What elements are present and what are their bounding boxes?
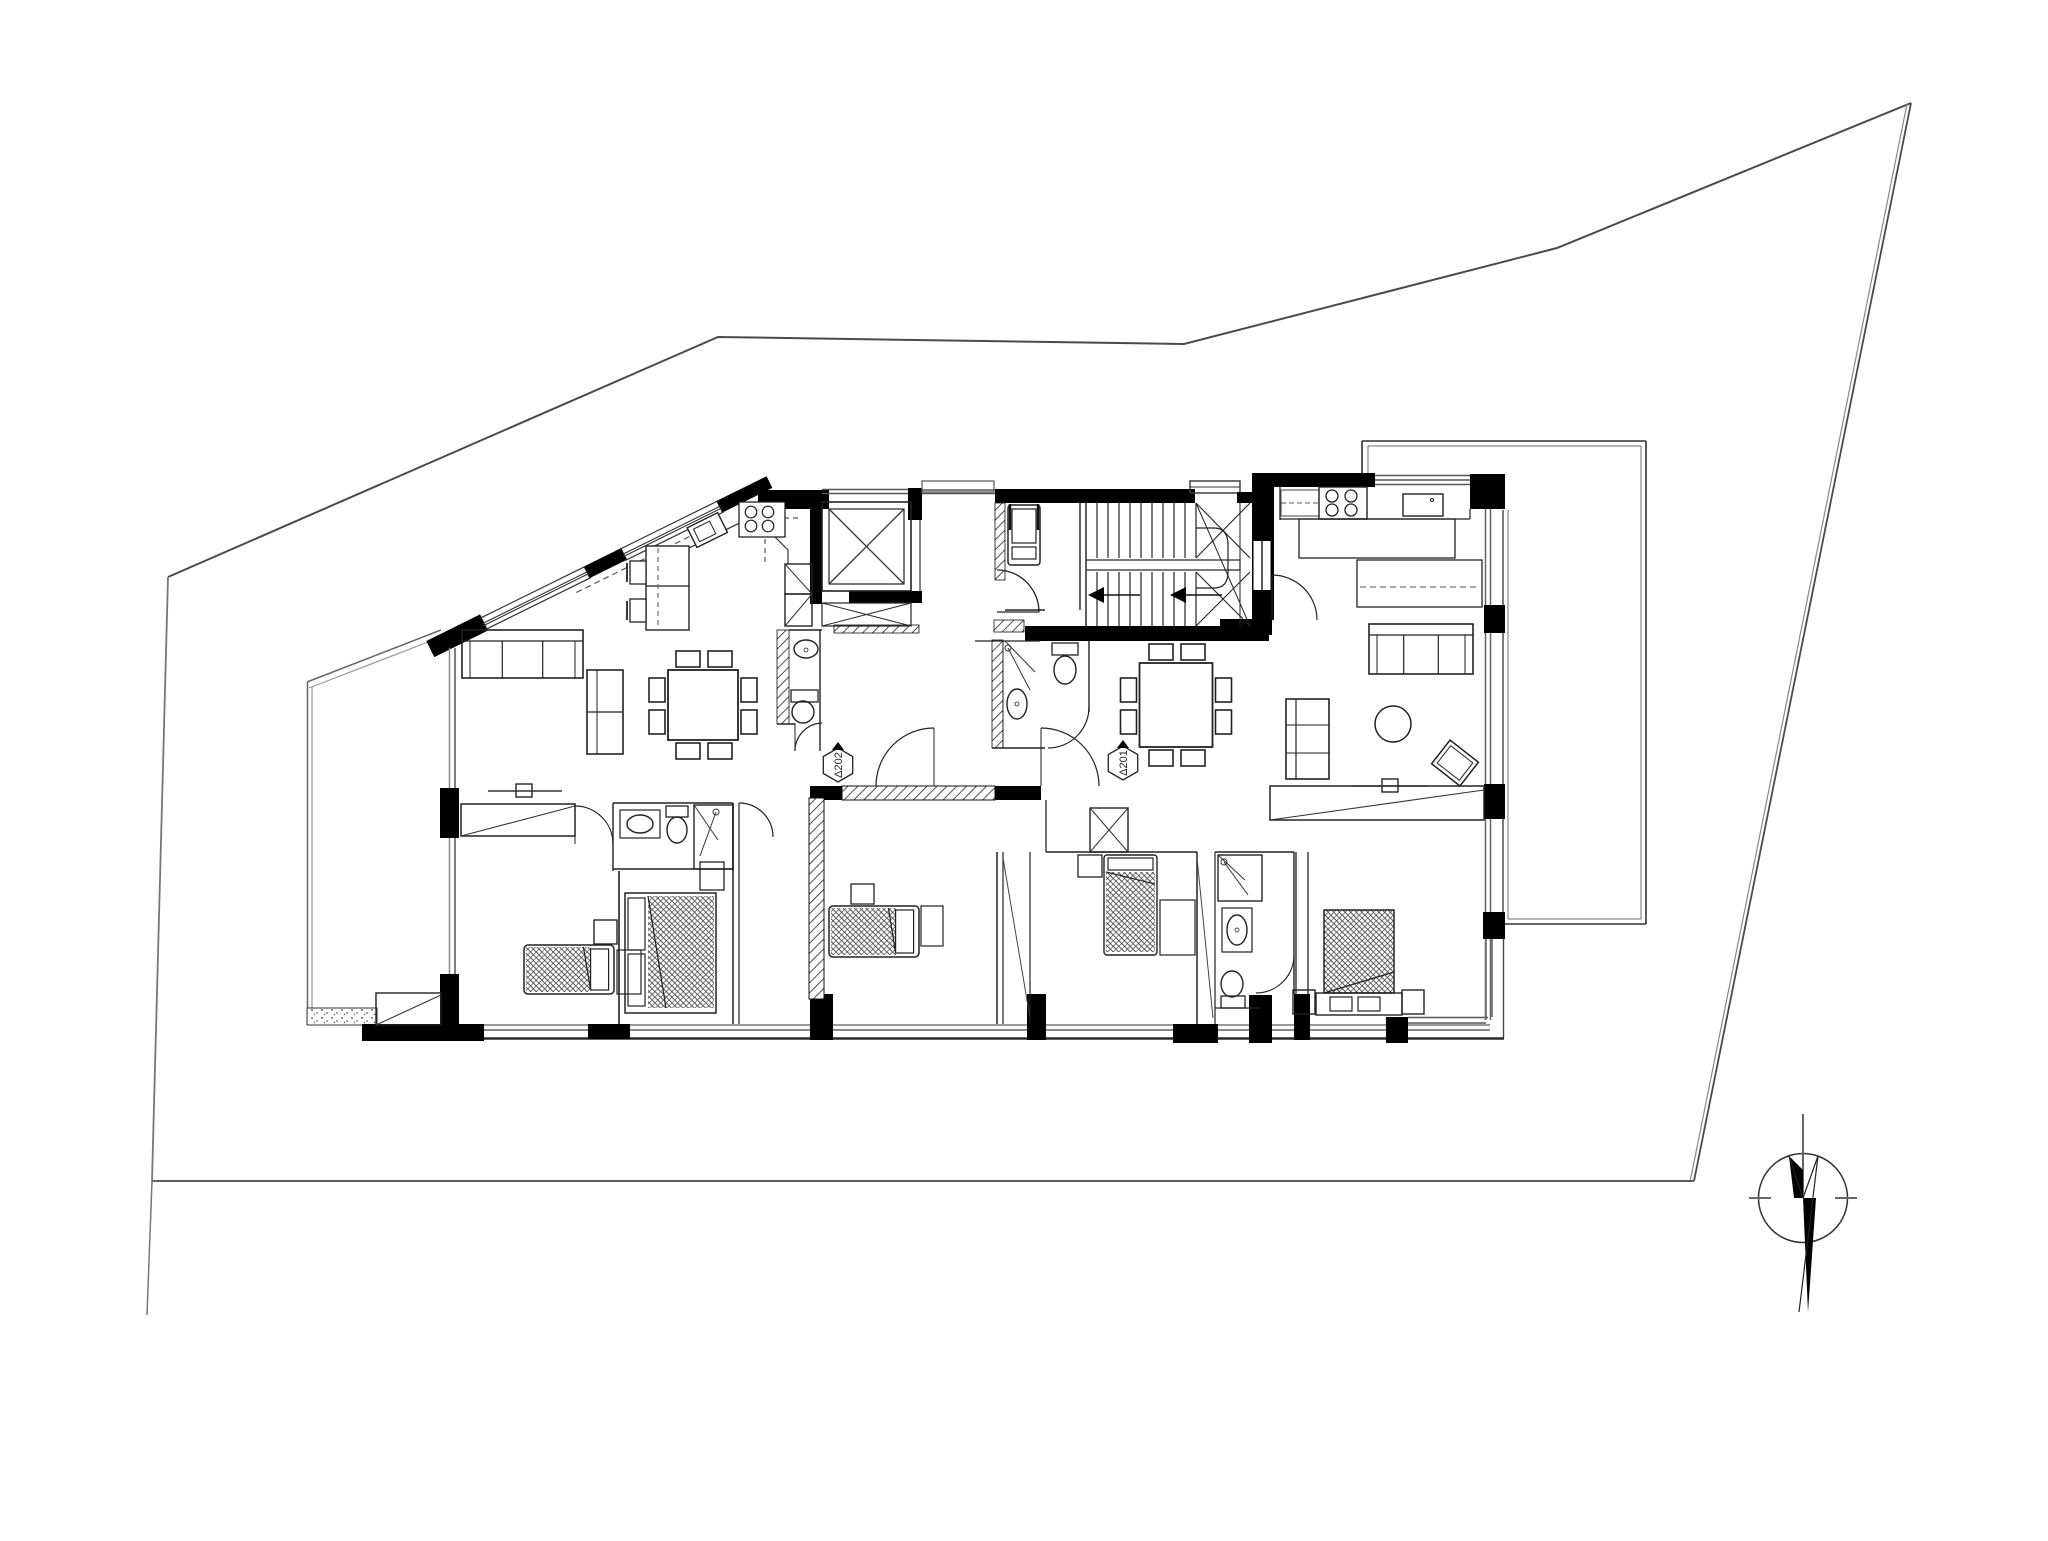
- svg-text:Δ201: Δ201: [1118, 750, 1130, 776]
- svg-text:Δ202: Δ202: [833, 752, 845, 778]
